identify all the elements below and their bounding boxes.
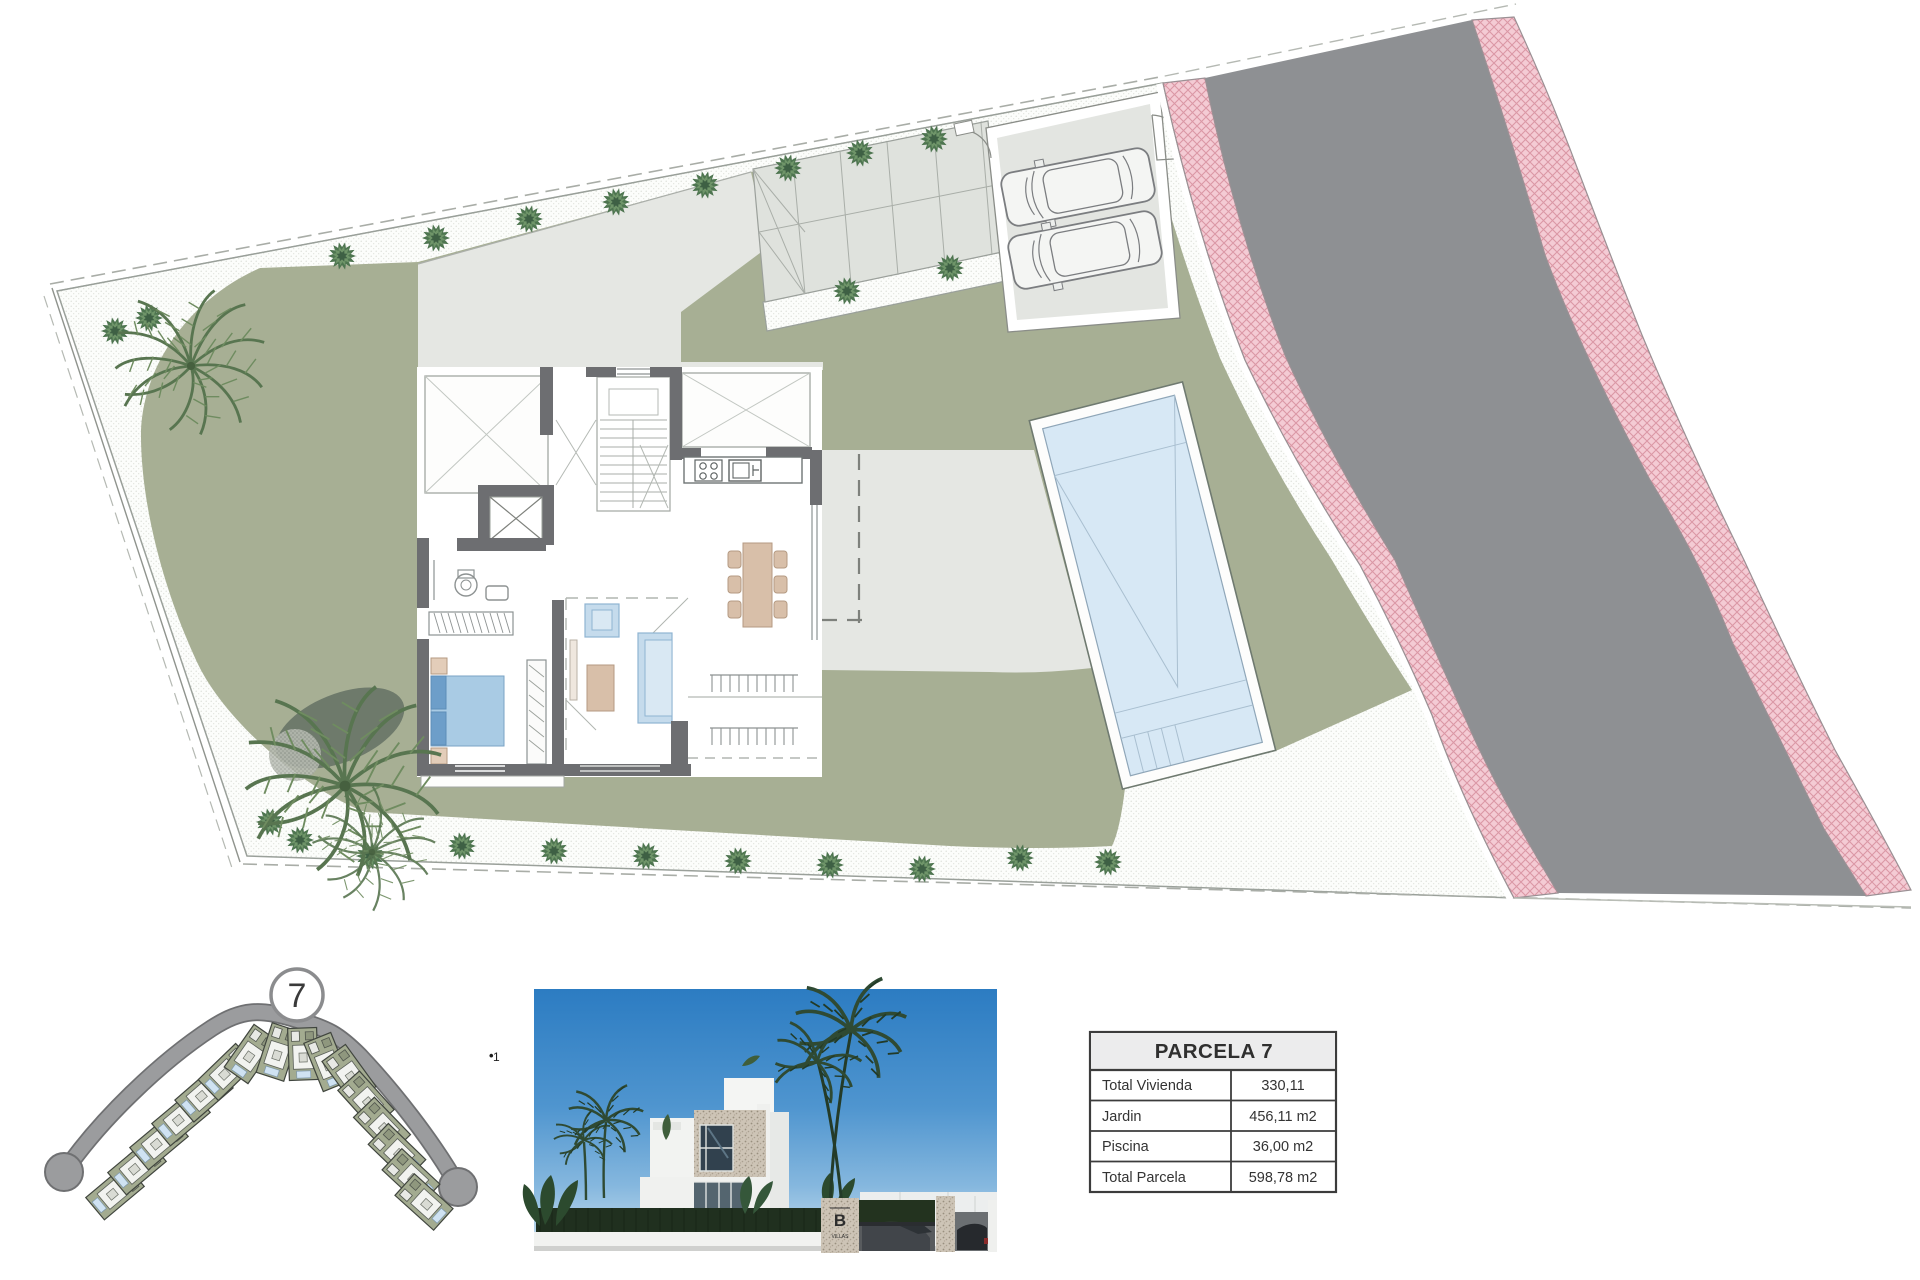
svg-text:598,78 m2: 598,78 m2 <box>1249 1170 1318 1186</box>
svg-text:Total Parcela: Total Parcela <box>1102 1170 1187 1186</box>
svg-text:36,00 m2: 36,00 m2 <box>1253 1139 1313 1155</box>
svg-text:Total Vivienda: Total Vivienda <box>1102 1078 1193 1094</box>
svg-text:B: B <box>834 1211 846 1230</box>
svg-text:330,11: 330,11 <box>1261 1078 1304 1094</box>
svg-text:1: 1 <box>493 1050 500 1064</box>
svg-text:VILLAS: VILLAS <box>832 1234 850 1240</box>
svg-text:PARCELA 7: PARCELA 7 <box>1155 1040 1273 1063</box>
svg-text:7: 7 <box>288 977 307 1015</box>
svg-text:Piscina: Piscina <box>1102 1139 1150 1155</box>
svg-text:Jardin: Jardin <box>1102 1109 1142 1125</box>
svg-text:456,11 m2: 456,11 m2 <box>1249 1109 1316 1125</box>
